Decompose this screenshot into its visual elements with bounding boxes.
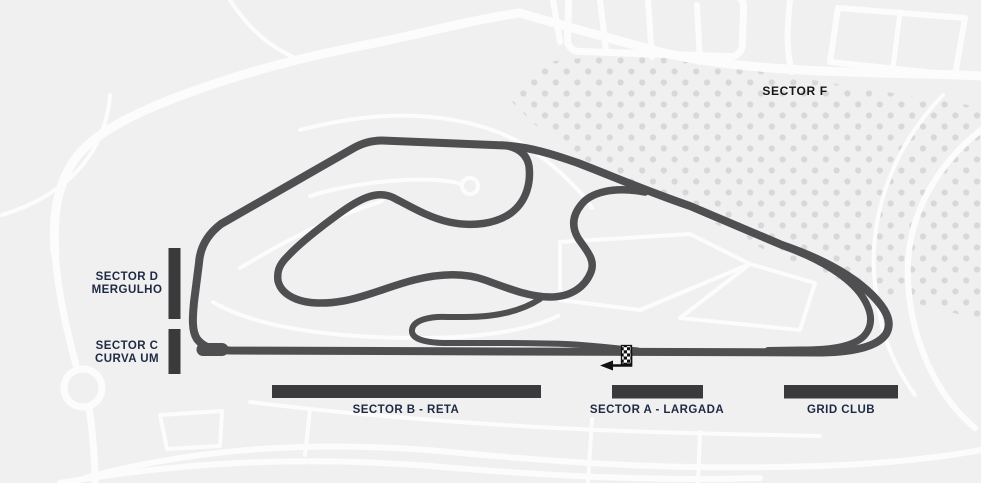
sector-a-bar xyxy=(612,385,703,399)
sector-c-line1: SECTOR C xyxy=(96,340,159,352)
sector-d-line1: SECTOR D xyxy=(96,271,159,283)
sector-c-bar xyxy=(169,329,181,374)
sector-d-label: SECTOR D MERGULHO xyxy=(92,271,163,297)
sector-c-line2: CURVA UM xyxy=(95,353,159,365)
direction-arrow-head xyxy=(600,361,613,371)
sector-c-label: SECTOR C CURVA UM xyxy=(95,340,159,366)
circuit-sector-map: SECTOR D MERGULHO SECTOR C CURVA UM SECT… xyxy=(0,0,981,483)
checkered-flag-icon xyxy=(622,346,632,365)
roundabout-circle xyxy=(462,178,478,194)
sector-f-label: SECTOR F xyxy=(762,85,827,98)
sector-d-bar xyxy=(169,248,181,319)
grid-club-label: GRID CLUB xyxy=(807,404,875,417)
sector-b-label: SECTOR B - RETA xyxy=(353,404,460,417)
sector-b-bar xyxy=(272,385,541,398)
sector-a-label: SECTOR A - LARGADA xyxy=(590,404,724,417)
sector-d-line2: MERGULHO xyxy=(92,284,163,296)
grid-club-bar xyxy=(784,385,898,399)
